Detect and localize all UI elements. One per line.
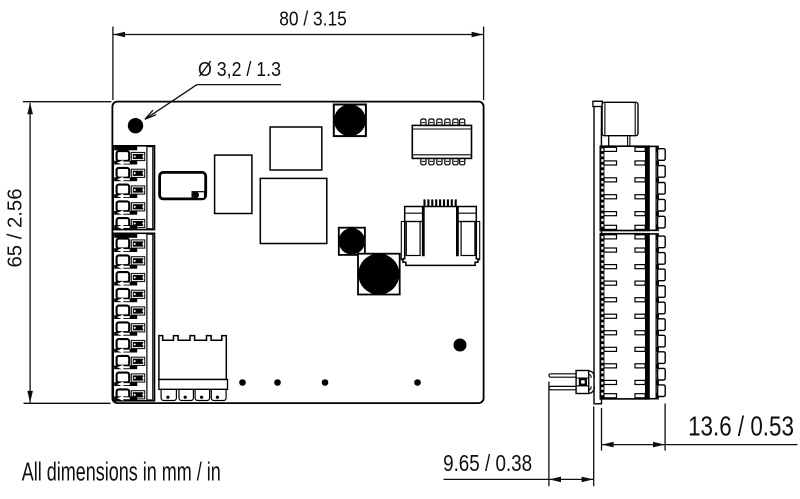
svg-text:65 / 2.56: 65 / 2.56 xyxy=(5,189,27,268)
svg-text:9.65 / 0.38: 9.65 / 0.38 xyxy=(443,450,532,476)
svg-text:All dimensions in mm / in: All dimensions in mm / in xyxy=(22,459,221,487)
svg-text:13.6 / 0.53: 13.6 / 0.53 xyxy=(688,411,794,442)
svg-text:80 / 3.15: 80 / 3.15 xyxy=(279,9,347,31)
svg-text:Ø 3,2 / 1.3: Ø 3,2 / 1.3 xyxy=(198,59,281,81)
